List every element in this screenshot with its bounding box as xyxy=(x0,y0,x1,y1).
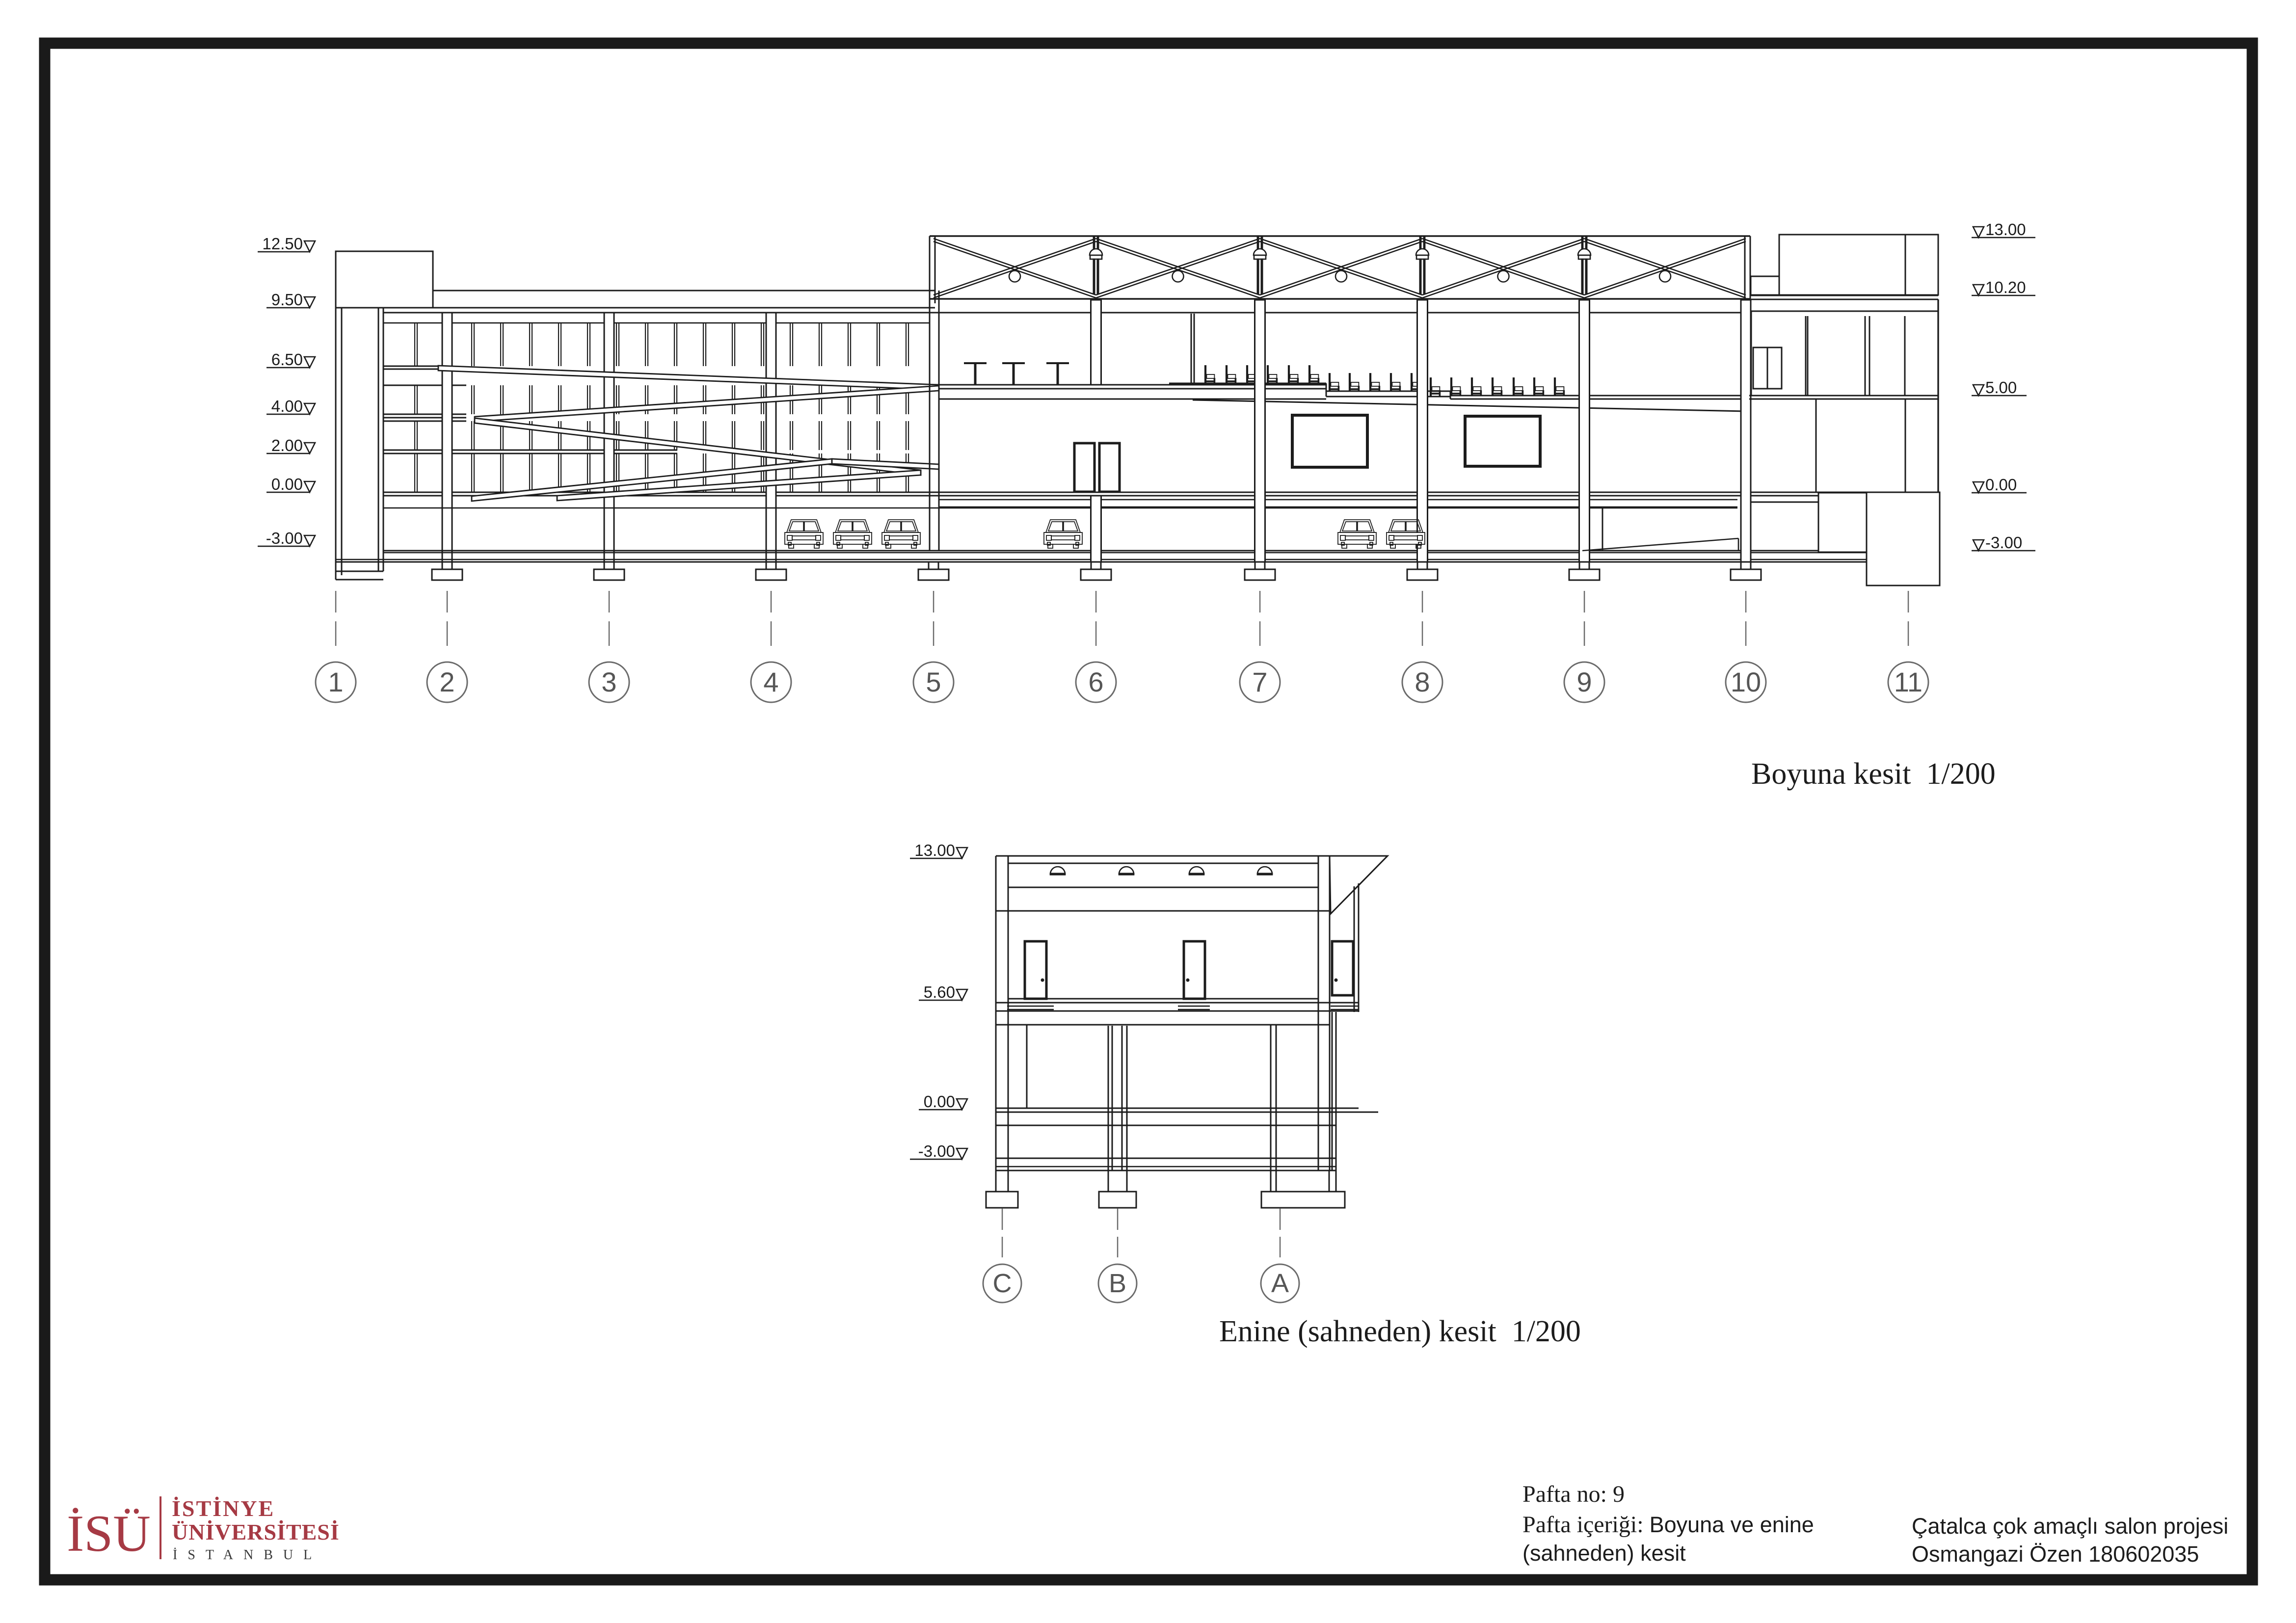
svg-text:B: B xyxy=(1109,1269,1126,1298)
svg-text:İSTİNYE: İSTİNYE xyxy=(172,1496,275,1521)
svg-text:Pafta içeriği: Boyuna ve enine: Pafta içeriği: Boyuna ve enine xyxy=(1522,1512,1814,1538)
svg-text:Osmangazi Özen 180602035: Osmangazi Özen 180602035 xyxy=(1912,1542,2199,1567)
svg-text:(sahneden) kesit: (sahneden) kesit xyxy=(1522,1541,1686,1566)
svg-text:5.60: 5.60 xyxy=(924,983,955,1001)
svg-text:ÜNİVERSİTESİ: ÜNİVERSİTESİ xyxy=(172,1519,340,1544)
svg-text:5.00: 5.00 xyxy=(1985,378,2017,397)
svg-text:0.00: 0.00 xyxy=(271,475,303,493)
svg-text:6.50: 6.50 xyxy=(271,350,303,369)
svg-text:12.50: 12.50 xyxy=(262,235,303,253)
svg-text:İSTANBUL: İSTANBUL xyxy=(173,1547,322,1563)
svg-text:Boyuna kesit 1/200: Boyuna kesit 1/200 xyxy=(1751,757,1996,791)
svg-text:-3.00: -3.00 xyxy=(266,529,303,547)
svg-text:5: 5 xyxy=(926,666,941,697)
svg-text:8: 8 xyxy=(1415,666,1430,697)
svg-text:İSÜ: İSÜ xyxy=(67,1505,151,1562)
svg-text:10.20: 10.20 xyxy=(1985,278,2026,296)
svg-text:3: 3 xyxy=(601,666,616,697)
svg-text:-3.00: -3.00 xyxy=(918,1142,955,1160)
svg-text:2: 2 xyxy=(439,666,454,697)
svg-text:4: 4 xyxy=(763,666,778,697)
svg-text:Çatalca çok amaçlı salon proje: Çatalca çok amaçlı salon projesi xyxy=(1912,1514,2228,1539)
svg-text:4.00: 4.00 xyxy=(271,397,303,415)
svg-text:10: 10 xyxy=(1731,666,1761,697)
svg-text:13.00: 13.00 xyxy=(1985,220,2026,239)
svg-text:Enine (sahneden) kesit 1/200: Enine (sahneden) kesit 1/200 xyxy=(1219,1315,1581,1348)
svg-text:0.00: 0.00 xyxy=(1985,476,2017,494)
svg-text:0.00: 0.00 xyxy=(924,1092,955,1111)
svg-text:A: A xyxy=(1271,1269,1289,1298)
svg-text:Pafta no: 9: Pafta no: 9 xyxy=(1522,1481,1625,1507)
svg-text:11: 11 xyxy=(1894,666,1922,697)
svg-text:6: 6 xyxy=(1088,666,1103,697)
svg-text:C: C xyxy=(993,1269,1012,1298)
svg-text:1: 1 xyxy=(328,666,343,697)
svg-text:-3.00: -3.00 xyxy=(1985,533,2022,552)
svg-text:7: 7 xyxy=(1252,666,1267,697)
svg-text:9.50: 9.50 xyxy=(271,291,303,309)
svg-text:13.00: 13.00 xyxy=(914,841,955,859)
svg-text:9: 9 xyxy=(1576,666,1592,697)
svg-text:2.00: 2.00 xyxy=(271,436,303,454)
